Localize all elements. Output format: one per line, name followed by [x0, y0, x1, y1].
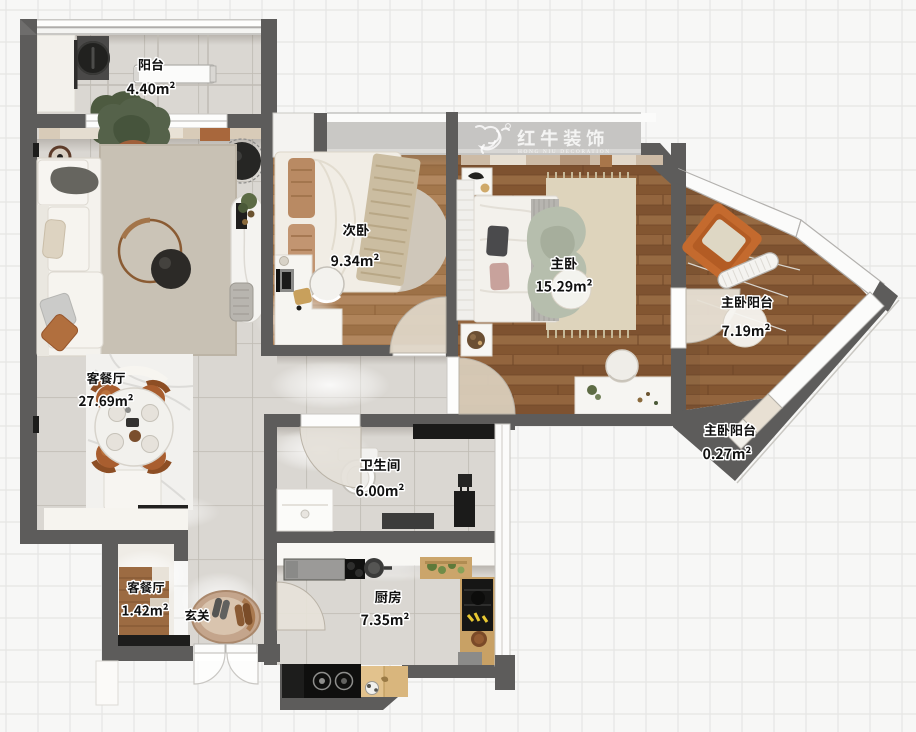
svg-text:HONG NIU DECORATION: HONG NIU DECORATION: [518, 149, 611, 155]
